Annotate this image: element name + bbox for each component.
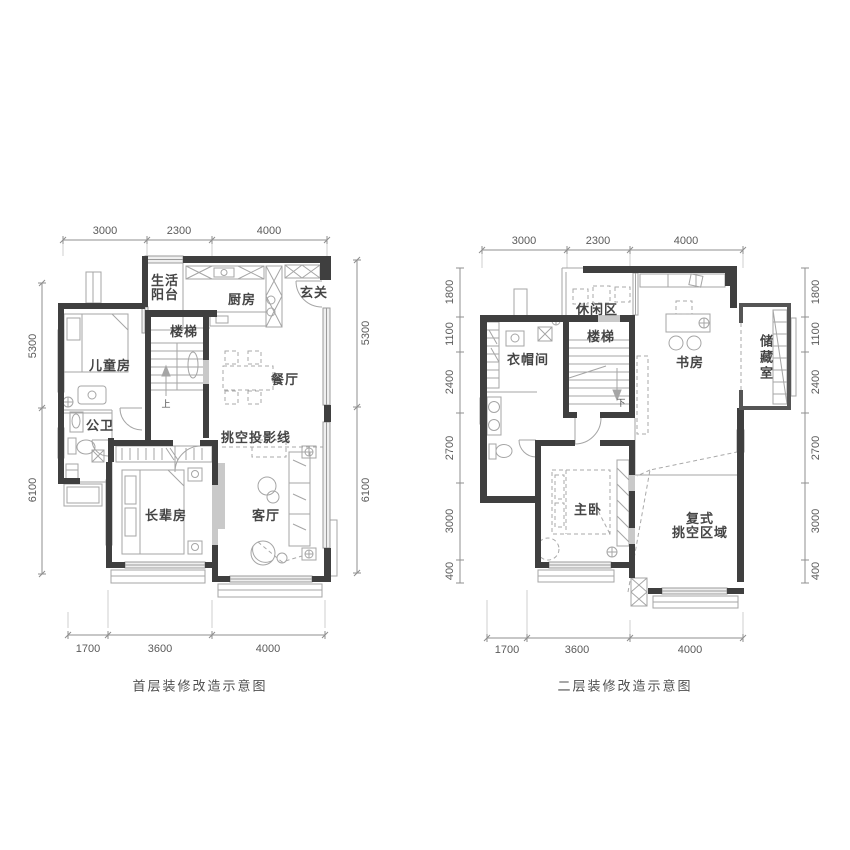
room-label-elder-room: 长辈房 — [145, 509, 187, 523]
room-label-kitchen: 厨房 — [228, 293, 256, 307]
room-label-stairs-1f: 楼梯 — [170, 325, 198, 339]
dim-p1-right-1: 6100 — [360, 478, 372, 502]
room-label-stairs-2f: 楼梯 — [587, 330, 615, 344]
caption-floor1: 首层装修改造示意图 — [132, 676, 267, 695]
room-label-balcony-line2: 阳台 — [151, 287, 179, 302]
room-label-kids-room: 儿童房 — [89, 359, 131, 373]
dim-p2-top-1: 2300 — [586, 235, 610, 247]
room-label-cloakroom: 衣帽间 — [507, 353, 549, 367]
dim-p1-bottom-0: 1700 — [76, 643, 100, 655]
dim-p2-right-1: 1100 — [810, 322, 822, 346]
room-label-entry: 玄关 — [300, 286, 328, 300]
stairs-down-label: 下 — [616, 396, 625, 410]
dim-p2-right-4: 3000 — [810, 509, 822, 533]
floorplan-page: 生活阳台 厨房 玄关 楼梯 儿童房 餐厅 公卫 挑空投影线 长辈房 客厅 上 休… — [0, 0, 850, 850]
void-projection-label: 挑空投影线 — [221, 431, 291, 445]
dim-p1-left-1: 6100 — [27, 478, 39, 502]
floorplan-linework — [0, 0, 850, 850]
dim-p1-top-2: 4000 — [257, 225, 281, 237]
dim-p2-right-5: 400 — [810, 562, 822, 580]
dim-p2-left-0: 1800 — [444, 280, 456, 304]
duplex-void-line1: 复式 — [686, 511, 714, 526]
room-label-storage: 储藏室 — [758, 334, 772, 382]
dim-p2-top-0: 3000 — [512, 235, 536, 247]
stairs-up-label: 上 — [161, 397, 170, 411]
dim-p1-bottom-1: 3600 — [148, 643, 172, 655]
room-label-study: 书房 — [676, 356, 704, 370]
room-label-leisure: 休闲区 — [576, 303, 618, 317]
room-label-dining: 餐厅 — [271, 373, 299, 387]
dim-p2-left-1: 1100 — [444, 322, 456, 346]
dim-p2-bottom-1: 3600 — [565, 644, 589, 656]
dim-p2-bottom-0: 1700 — [495, 644, 519, 656]
dim-p1-left-0: 5300 — [27, 334, 39, 358]
room-label-balcony: 生活阳台 — [151, 274, 179, 302]
dim-p2-right-2: 2400 — [810, 370, 822, 394]
dim-p2-left-5: 400 — [444, 562, 456, 580]
room-label-bath: 公卫 — [86, 419, 114, 433]
caption-floor2: 二层装修改造示意图 — [557, 676, 692, 695]
dim-p2-top-2: 4000 — [674, 235, 698, 247]
dim-p2-bottom-2: 4000 — [678, 644, 702, 656]
dim-p2-right-3: 2700 — [810, 436, 822, 460]
dim-p1-top-1: 2300 — [167, 225, 191, 237]
dim-p1-right-0: 5300 — [360, 321, 372, 345]
duplex-void-label: 复式挑空区域 — [672, 512, 728, 540]
dim-p1-top-0: 3000 — [93, 225, 117, 237]
room-label-balcony-line1: 生活 — [151, 273, 179, 288]
dim-p1-bottom-2: 4000 — [256, 643, 280, 655]
dim-p2-left-3: 2700 — [444, 436, 456, 460]
room-label-living: 客厅 — [252, 509, 280, 523]
dim-p2-right-0: 1800 — [810, 280, 822, 304]
dim-p2-left-4: 3000 — [444, 509, 456, 533]
duplex-void-line2: 挑空区域 — [672, 525, 728, 540]
room-label-master: 主卧 — [574, 503, 602, 517]
dim-p2-left-2: 2400 — [444, 370, 456, 394]
